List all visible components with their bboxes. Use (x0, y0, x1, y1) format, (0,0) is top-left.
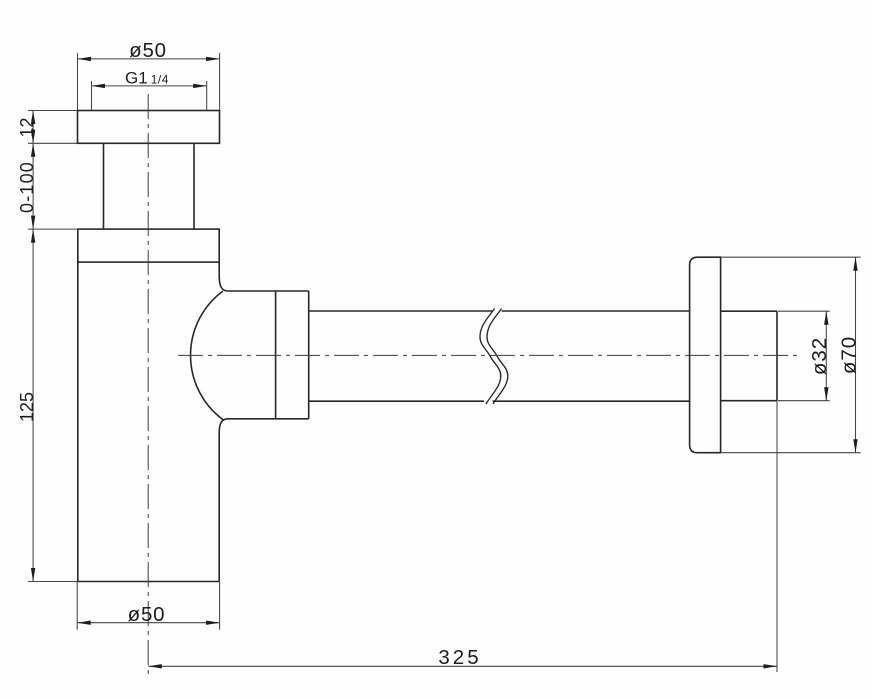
svg-text:ø70: ø70 (838, 336, 861, 374)
svg-text:ø32: ø32 (808, 337, 831, 375)
svg-text:325: 325 (438, 646, 481, 669)
svg-text:G11/4: G11/4 (125, 69, 169, 88)
svg-text:ø50: ø50 (129, 39, 167, 62)
svg-text:12: 12 (17, 117, 37, 137)
svg-text:ø50: ø50 (128, 603, 166, 626)
svg-text:0-100: 0-100 (17, 161, 37, 213)
svg-text:125: 125 (17, 392, 37, 422)
